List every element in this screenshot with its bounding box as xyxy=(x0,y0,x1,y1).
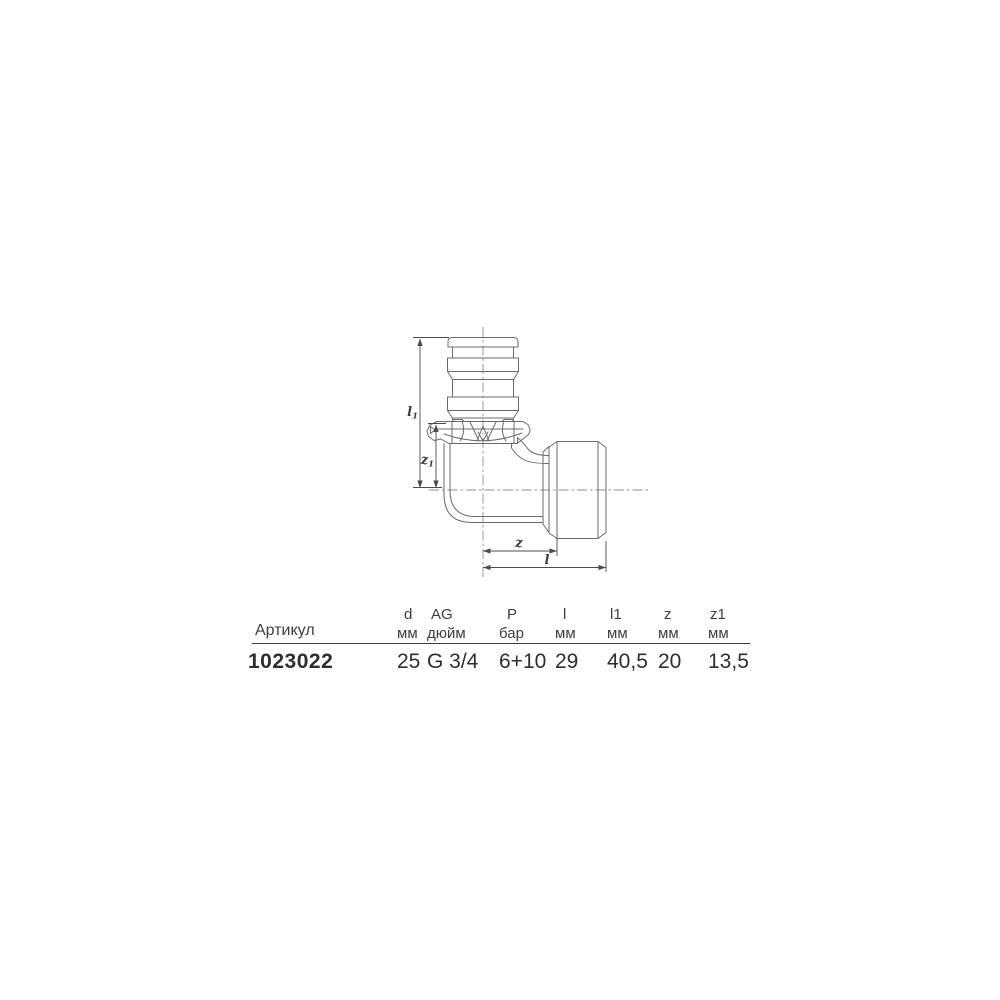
column-header: l1 xyxy=(607,606,628,623)
column-value: 20 xyxy=(658,650,681,674)
column-value: 29 xyxy=(555,650,578,674)
page: l1 z1 z l Артикул 1023022 d мм 25 AG дюй… xyxy=(0,0,1000,1000)
column-header: d xyxy=(397,606,418,623)
table-column-l1: l1 мм 40,5 xyxy=(607,606,628,642)
column-value: 6+10 xyxy=(499,650,546,674)
column-unit: мм xyxy=(708,625,729,642)
column-header: z xyxy=(658,606,679,623)
column-value: G 3/4 xyxy=(427,650,478,674)
column-unit: мм xyxy=(397,625,418,642)
column-value: 25 xyxy=(397,650,420,674)
column-unit: дюйм xyxy=(427,625,466,642)
table-column-p: P бар 6+10 xyxy=(499,606,524,642)
article-label: Артикул xyxy=(255,622,315,640)
table-column-z1: z1 мм 13,5 xyxy=(708,606,729,642)
spec-table: Артикул 1023022 d мм 25 AG дюйм G 3/4 P … xyxy=(0,0,1000,1000)
column-header: z1 xyxy=(708,606,729,623)
table-column-z: z мм 20 xyxy=(658,606,679,642)
column-header: AG xyxy=(427,606,466,623)
column-header: l xyxy=(555,606,576,623)
column-value: 40,5 xyxy=(607,650,648,674)
table-column-l: l мм 29 xyxy=(555,606,576,642)
table-header-rule xyxy=(252,643,750,644)
article-value: 1023022 xyxy=(248,650,333,674)
column-unit: мм xyxy=(607,625,628,642)
column-unit: мм xyxy=(658,625,679,642)
column-unit: бар xyxy=(499,625,524,642)
column-header: P xyxy=(499,606,524,623)
table-column-d: d мм 25 xyxy=(397,606,418,642)
table-column-ag: AG дюйм G 3/4 xyxy=(427,606,466,642)
column-unit: мм xyxy=(555,625,576,642)
column-value: 13,5 xyxy=(708,650,749,674)
